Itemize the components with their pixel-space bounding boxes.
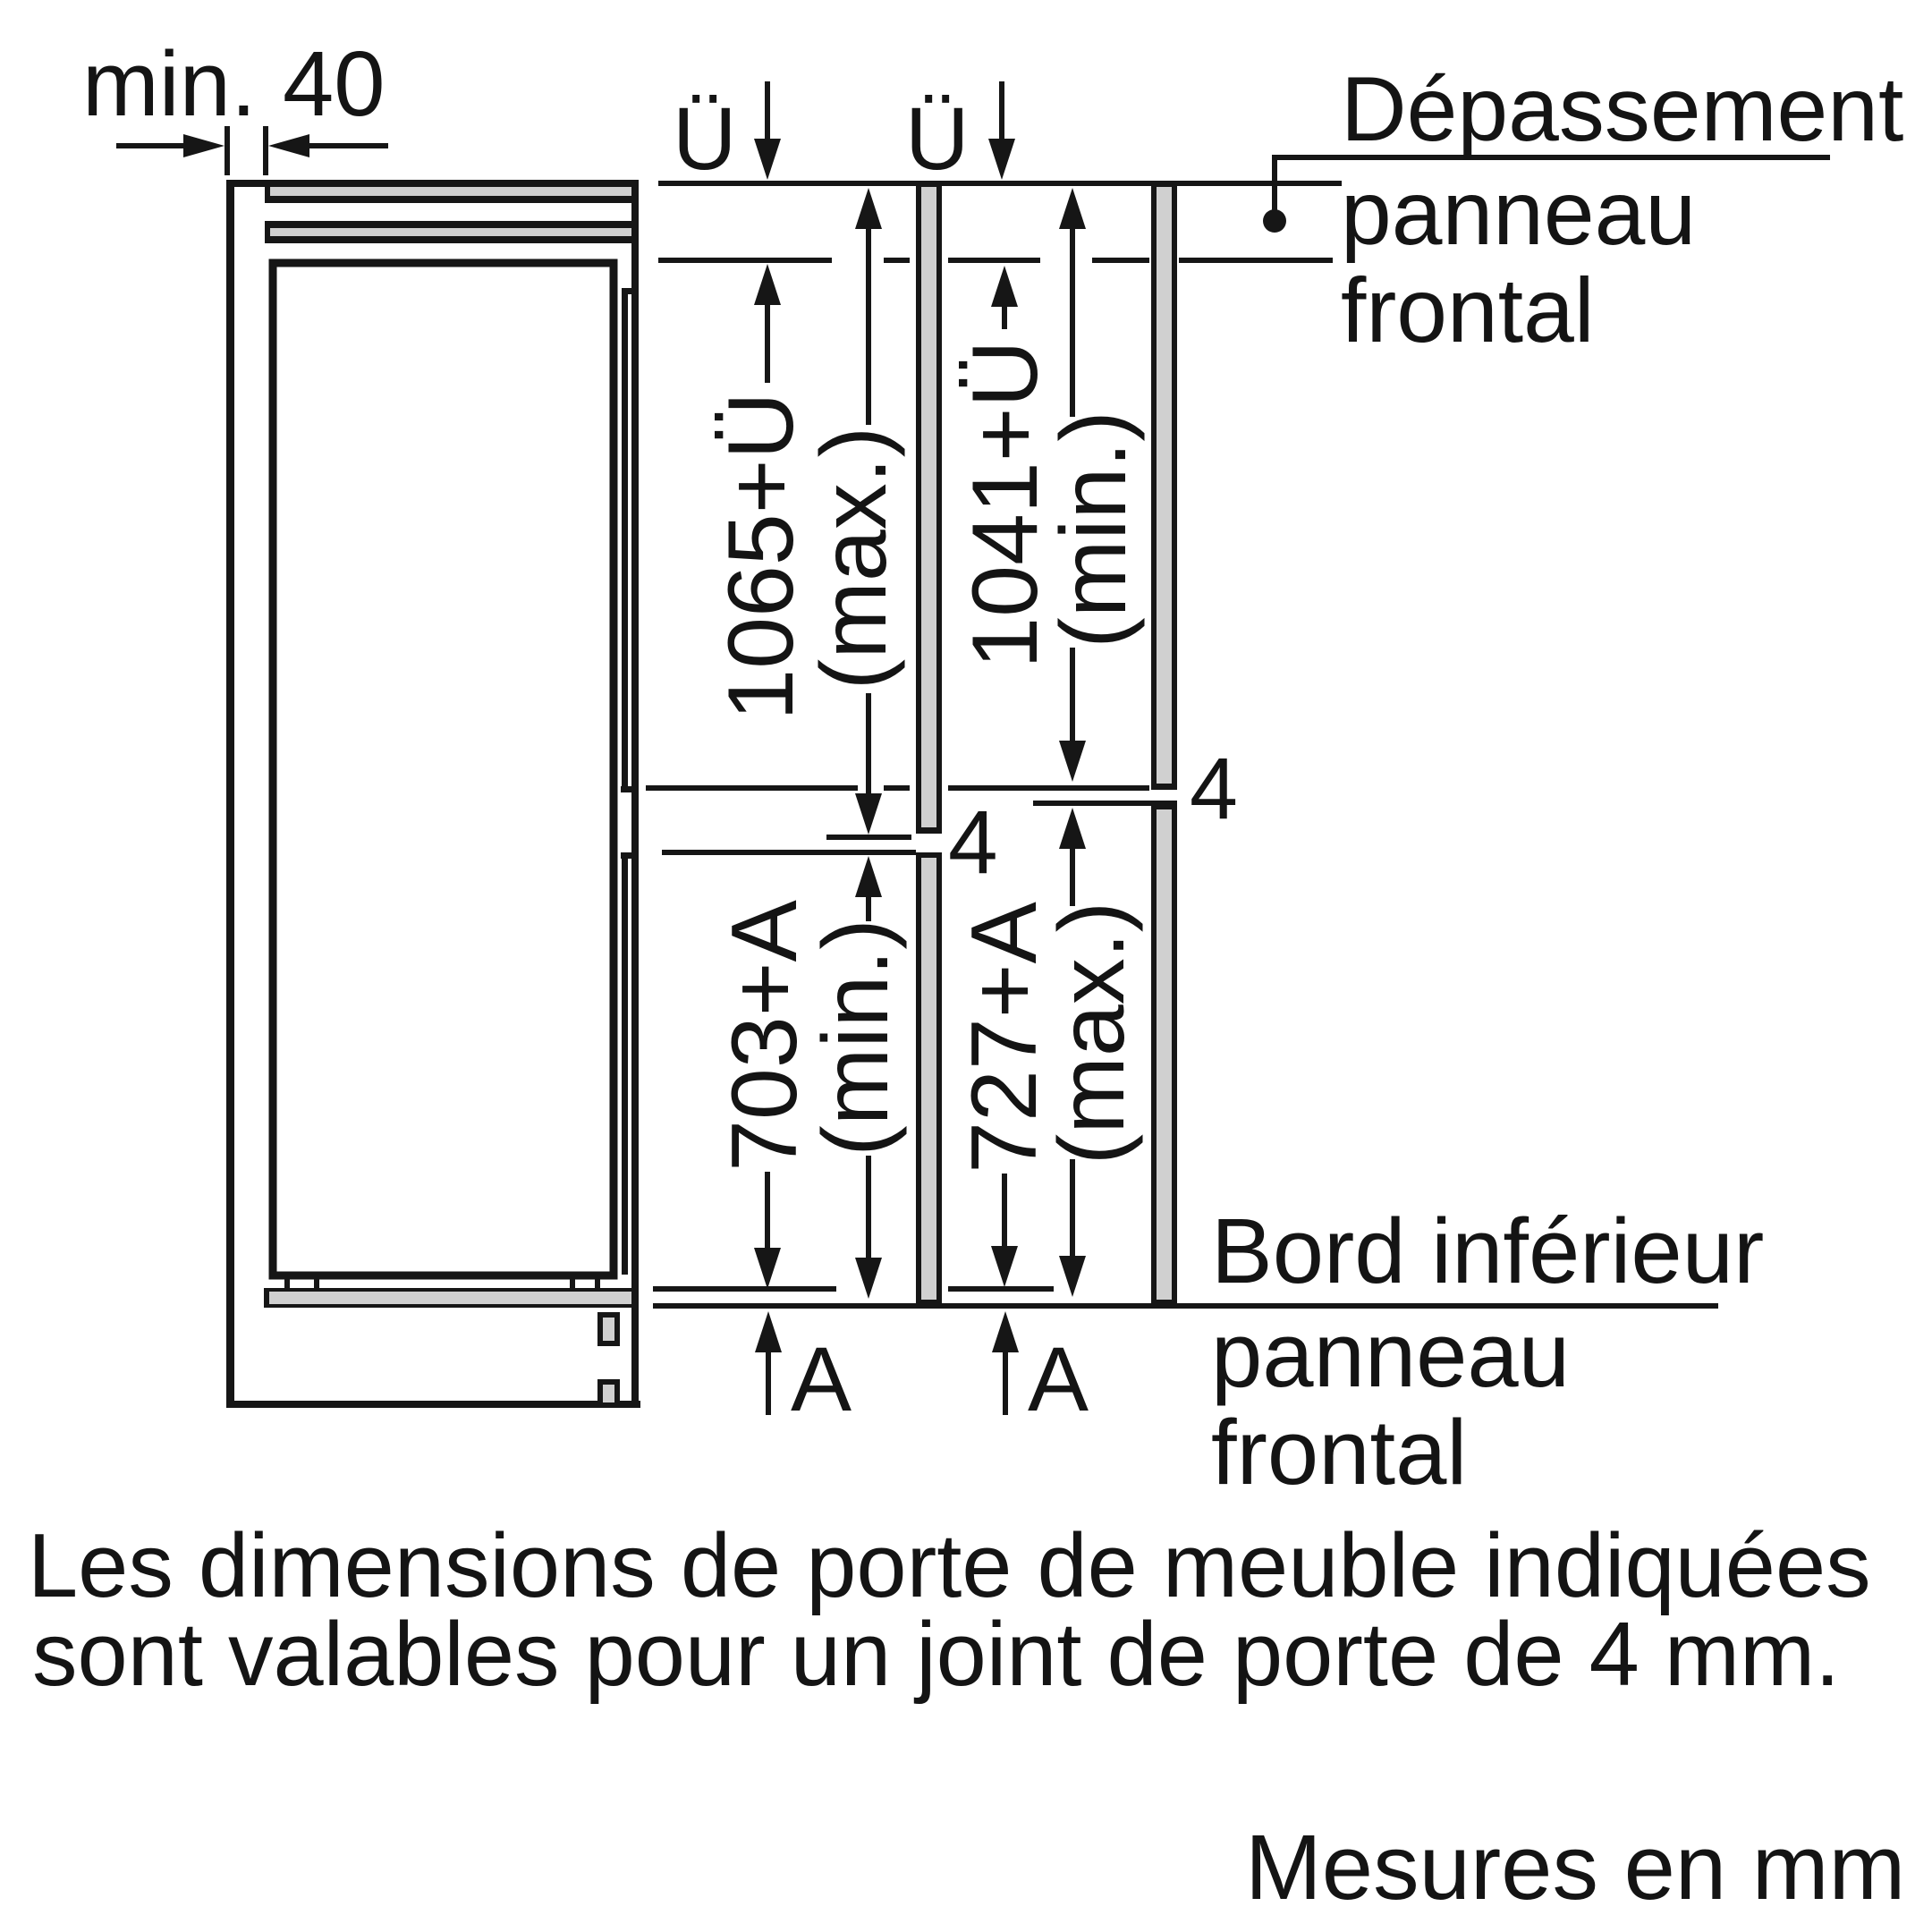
svg-text:Mesures en mm: Mesures en mm (1245, 1816, 1905, 1919)
svg-text:(max.): (max.) (802, 427, 906, 691)
svg-text:(min.): (min.) (804, 919, 908, 1157)
svg-text:Les dimensions de porte de meu: Les dimensions de porte de meuble indiqu… (28, 1516, 1871, 1616)
svg-text:703+A: 703+A (713, 900, 817, 1172)
svg-text:4: 4 (1190, 740, 1238, 837)
svg-text:4: 4 (948, 792, 998, 893)
svg-text:(max.): (max.) (1040, 902, 1144, 1165)
svg-text:A: A (791, 1328, 852, 1430)
svg-text:1065+Ü: 1065+Ü (709, 392, 813, 720)
svg-text:A: A (1028, 1328, 1089, 1430)
svg-text:Ü: Ü (673, 89, 737, 188)
svg-text:Ü: Ü (905, 89, 970, 188)
svg-text:min.: min. (82, 32, 257, 135)
svg-text:panneau: panneau (1211, 1303, 1570, 1406)
svg-text:(min.): (min.) (1042, 411, 1146, 648)
svg-text:frontal: frontal (1341, 259, 1595, 361)
svg-text:frontal: frontal (1211, 1401, 1467, 1504)
svg-text:Bord inférieur: Bord inférieur (1211, 1199, 1764, 1302)
svg-text:sont valables pour un joint de: sont valables pour un joint de porte de … (32, 1605, 1840, 1705)
svg-text:40: 40 (283, 32, 386, 135)
svg-text:Dépassement: Dépassement (1341, 58, 1903, 160)
svg-text:panneau: panneau (1341, 162, 1696, 264)
